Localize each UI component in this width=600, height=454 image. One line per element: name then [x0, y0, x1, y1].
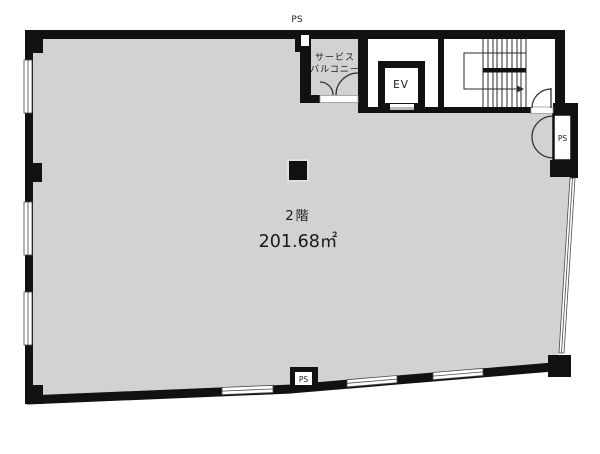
stair-mid-rail — [483, 68, 526, 73]
ps-shaft-top-void — [301, 35, 309, 46]
balcony-left-wall — [300, 48, 311, 103]
balcony-bottom-wall — [300, 95, 320, 103]
balcony-door-threshold — [320, 96, 358, 103]
column-bottom-right — [548, 355, 571, 377]
column-in-room — [288, 160, 308, 181]
stair-door-threshold — [531, 107, 553, 114]
floor-plan: PS サービス バルコニー EV PS 2階 201.68㎡ PS — [0, 0, 600, 454]
stair-left-wall — [438, 39, 444, 113]
column-top-left — [25, 30, 43, 53]
service-balcony-label-1: サービス — [315, 52, 355, 63]
ps-bottom-label: PS — [299, 375, 309, 384]
wall-stair-right — [555, 30, 565, 110]
elevator-label: EV — [393, 79, 409, 91]
stairwell — [443, 39, 555, 107]
floor-plan-page: PS サービス バルコニー EV PS 2階 201.68㎡ PS — [0, 0, 600, 454]
ev-door-sill — [390, 107, 414, 110]
stair-bottom-wall — [443, 107, 531, 113]
floor-label: 2階 — [285, 209, 310, 224]
area-label: 201.68㎡ — [259, 232, 338, 252]
column-bottom-left — [25, 385, 43, 404]
column-below-ps-closet — [550, 160, 574, 177]
ps-right-label: PS — [558, 134, 568, 143]
service-balcony-label-2: バルコニー — [310, 64, 360, 75]
ps-top-label: PS — [291, 15, 302, 25]
column-left-mid — [27, 163, 42, 182]
